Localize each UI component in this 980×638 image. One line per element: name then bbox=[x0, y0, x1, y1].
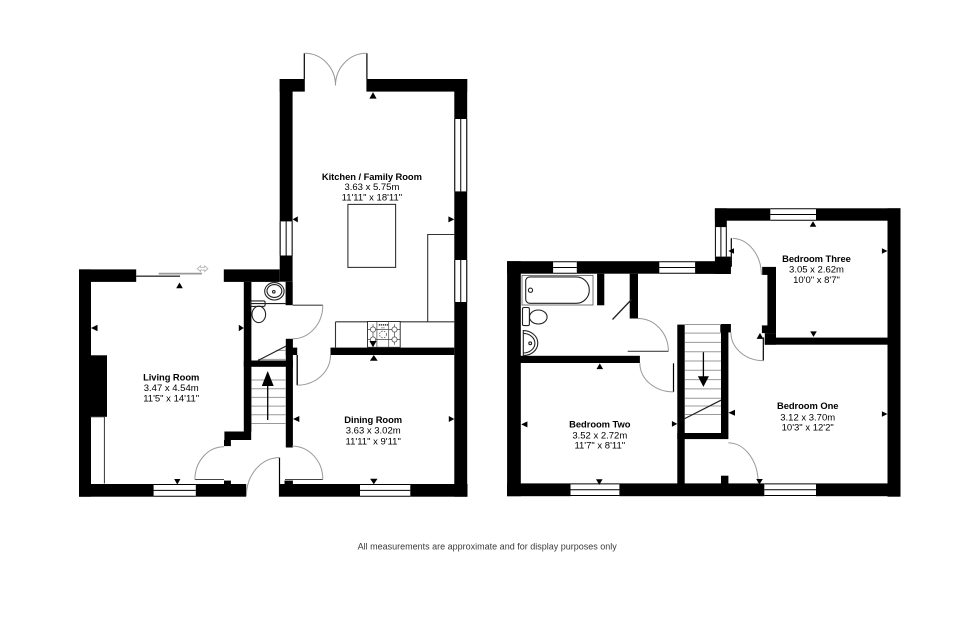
svg-text:Living Room: Living Room bbox=[143, 372, 199, 383]
svg-text:Dining Room: Dining Room bbox=[344, 414, 402, 425]
svg-text:Bedroom One: Bedroom One bbox=[777, 400, 838, 411]
svg-text:Bedroom Two: Bedroom Two bbox=[569, 419, 631, 430]
svg-text:11'5" x 14'11": 11'5" x 14'11" bbox=[143, 393, 199, 404]
svg-text:3.47 x 4.54m: 3.47 x 4.54m bbox=[144, 383, 199, 394]
svg-text:10'3" x 12'2": 10'3" x 12'2" bbox=[782, 423, 834, 434]
svg-text:Bedroom Three: Bedroom Three bbox=[782, 253, 851, 264]
svg-text:All measurements are approxima: All measurements are approximate and for… bbox=[358, 541, 618, 551]
svg-text:10'0" x 8'7": 10'0" x 8'7" bbox=[793, 275, 840, 286]
svg-text:11'11" x 18'11": 11'11" x 18'11" bbox=[342, 192, 403, 203]
svg-text:3.05 x 2.62m: 3.05 x 2.62m bbox=[789, 264, 844, 275]
svg-text:Kitchen / Family Room: Kitchen / Family Room bbox=[322, 171, 422, 182]
svg-text:3.63 x 3.02m: 3.63 x 3.02m bbox=[346, 426, 401, 437]
svg-text:11'7" x 8'11": 11'7" x 8'11" bbox=[574, 440, 625, 451]
svg-text:11'11" x 9'11": 11'11" x 9'11" bbox=[346, 436, 401, 447]
